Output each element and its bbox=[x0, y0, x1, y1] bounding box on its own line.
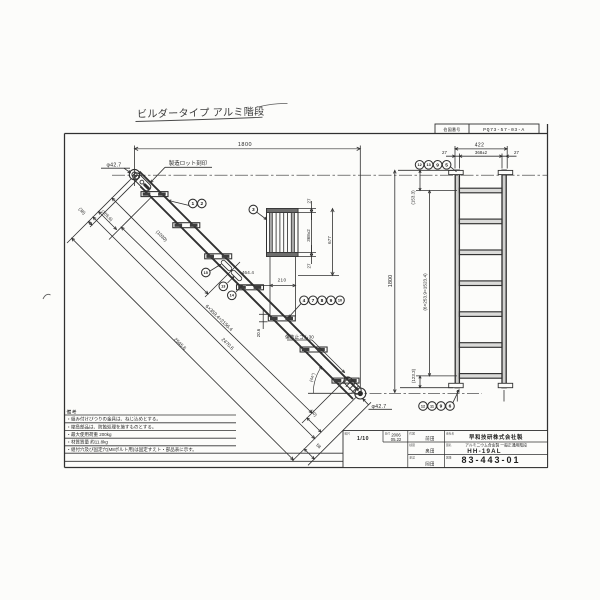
svg-text:12: 12 bbox=[421, 404, 425, 408]
svg-text:13: 13 bbox=[221, 285, 225, 289]
svg-text:3: 3 bbox=[252, 207, 255, 213]
svg-text:6: 6 bbox=[449, 404, 452, 410]
svg-text:(1030): (1030) bbox=[154, 229, 168, 243]
svg-text:58: 58 bbox=[315, 442, 322, 449]
svg-text:伯図番号: 伯図番号 bbox=[443, 126, 460, 132]
svg-text:27: 27 bbox=[306, 263, 311, 269]
svg-text:27: 27 bbox=[442, 150, 447, 155]
svg-text:13: 13 bbox=[426, 163, 430, 167]
svg-text:464.4: 464.4 bbox=[242, 270, 255, 275]
svg-text:368±2: 368±2 bbox=[475, 150, 488, 155]
svg-text:27: 27 bbox=[306, 198, 311, 204]
svg-text:アルミニウム合金製 一般正通用階段: アルミニウム合金製 一般正通用階段 bbox=[465, 442, 527, 447]
svg-text:210: 210 bbox=[278, 278, 287, 283]
svg-text:1/10: 1/10 bbox=[357, 436, 369, 442]
svg-text:HH-19AL: HH-19AL bbox=[467, 448, 502, 455]
svg-text:縮尺: 縮尺 bbox=[345, 431, 351, 435]
svg-text:前田: 前田 bbox=[425, 435, 434, 442]
svg-text:図番: 図番 bbox=[446, 455, 452, 459]
svg-text:・組付穴及び固定穴(M8ボルト用)は固定すえト・部品表に示す: ・組付穴及び固定穴(M8ボルト用)は固定すえト・部品表に示す。 bbox=[67, 446, 197, 453]
svg-text:1800: 1800 bbox=[238, 142, 252, 148]
svg-text:承認: 承認 bbox=[409, 455, 415, 459]
svg-text:(38): (38) bbox=[78, 206, 87, 215]
svg-text:作図: 作図 bbox=[409, 431, 415, 435]
svg-text:677: 677 bbox=[327, 236, 332, 244]
svg-text:傷防止ゴム30: 傷防止ゴム30 bbox=[285, 333, 314, 340]
svg-text:12: 12 bbox=[417, 163, 421, 167]
svg-text:日付: 日付 bbox=[385, 431, 391, 435]
svg-text:製造ロット刻印: 製造ロット刻印 bbox=[169, 159, 207, 167]
svg-text:1800: 1800 bbox=[388, 275, 394, 287]
svg-text:2: 2 bbox=[200, 201, 203, 207]
svg-text:備考: 備考 bbox=[67, 408, 78, 415]
svg-text:83-443-01: 83-443-01 bbox=[461, 455, 520, 465]
svg-text:20.6: 20.6 bbox=[256, 328, 261, 337]
svg-text:早和技研株式会社製: 早和技研株式会社製 bbox=[469, 433, 523, 441]
svg-text:15: 15 bbox=[204, 271, 208, 275]
svg-text:φ42.7: φ42.7 bbox=[107, 163, 122, 169]
svg-text:奥田: 奥田 bbox=[425, 448, 434, 455]
svg-text:PQ73-57-03-A: PQ73-57-03-A bbox=[483, 127, 525, 133]
svg-text:10: 10 bbox=[338, 299, 342, 303]
svg-text:(153.3): (153.3) bbox=[411, 190, 416, 205]
svg-text:・材質質量 約11.8kg: ・材質質量 約11.8kg bbox=[67, 439, 109, 446]
svg-text:5: 5 bbox=[445, 163, 448, 169]
svg-text:4: 4 bbox=[303, 298, 306, 304]
svg-text:368±2: 368±2 bbox=[306, 229, 311, 242]
svg-text:・縮島部品は、防蝕処理を施すものとする。: ・縮島部品は、防蝕処理を施すものとする。 bbox=[67, 423, 157, 430]
svg-text:422: 422 bbox=[475, 143, 485, 149]
svg-text:11: 11 bbox=[430, 404, 434, 408]
svg-text:会社名: 会社名 bbox=[446, 431, 455, 435]
svg-text:・組み付けびつりの金具は、ねじ込めとする。: ・組み付けびつりの金具は、ねじ込めとする。 bbox=[67, 416, 161, 423]
svg-text:7: 7 bbox=[312, 298, 315, 304]
svg-text:9: 9 bbox=[440, 404, 443, 410]
svg-text:9: 9 bbox=[436, 163, 439, 169]
svg-text:2545.6: 2545.6 bbox=[172, 337, 187, 352]
svg-text:(123.3): (123.3) bbox=[411, 368, 416, 383]
svg-text:2470.6: 2470.6 bbox=[220, 337, 235, 352]
svg-text:8: 8 bbox=[321, 298, 324, 304]
svg-text:6×359.4=2156.4: 6×359.4=2156.4 bbox=[204, 304, 234, 333]
svg-text:27: 27 bbox=[514, 150, 519, 155]
svg-text:検図: 検図 bbox=[409, 443, 415, 447]
svg-text:(6×253.9=1523.4): (6×253.9=1523.4) bbox=[422, 273, 427, 311]
svg-text:図名: 図名 bbox=[446, 443, 452, 447]
svg-text:9: 9 bbox=[330, 298, 333, 304]
svg-text:1: 1 bbox=[191, 201, 194, 207]
svg-text:05.22: 05.22 bbox=[391, 437, 402, 442]
svg-text:・最大使用荷重 200kg: ・最大使用荷重 200kg bbox=[67, 431, 113, 438]
svg-text:(30): (30) bbox=[309, 408, 318, 417]
